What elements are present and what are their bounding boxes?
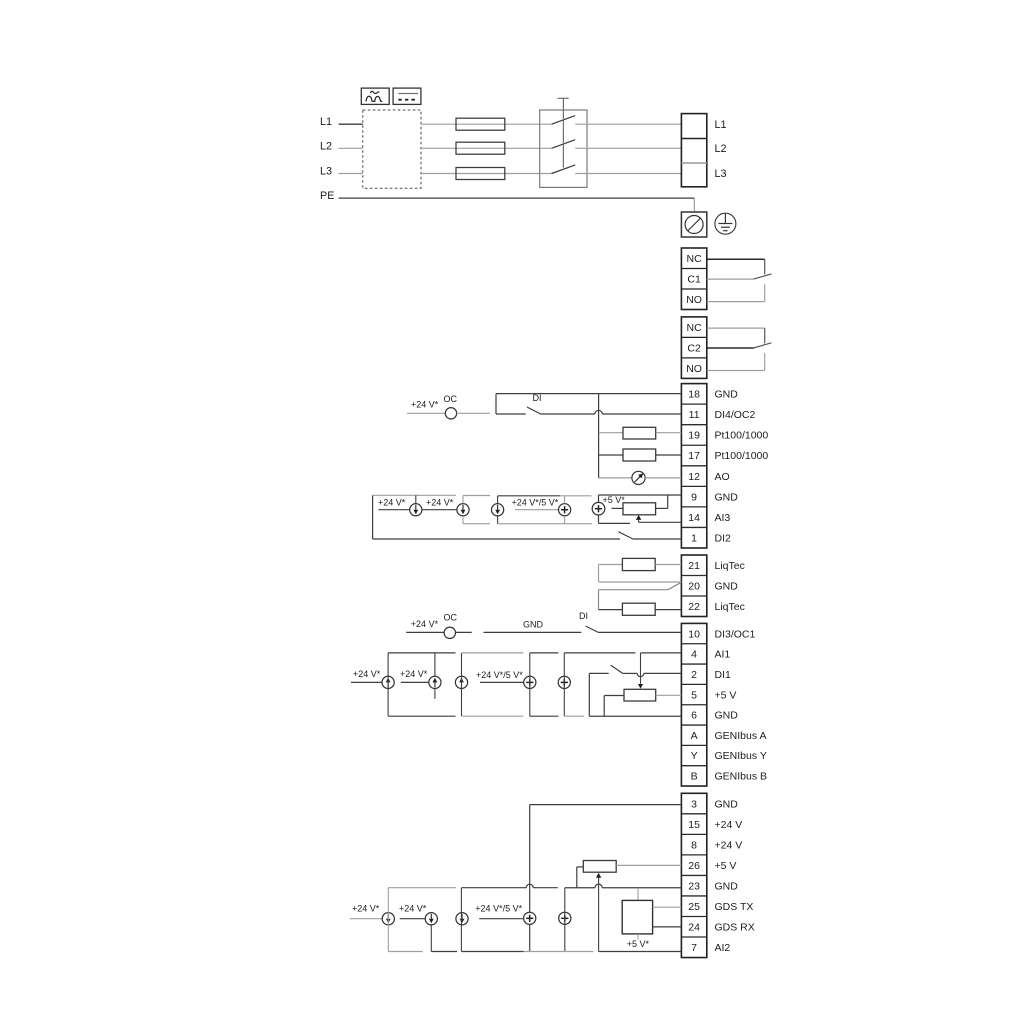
svg-text:+24 V*: +24 V* <box>378 498 406 508</box>
svg-text:20: 20 <box>688 580 700 592</box>
svg-text:14: 14 <box>688 512 700 524</box>
svg-text:A: A <box>691 730 698 742</box>
svg-text:L1: L1 <box>715 119 727 131</box>
svg-text:LiqTec: LiqTec <box>715 601 745 613</box>
svg-text:26: 26 <box>688 860 700 872</box>
svg-text:NO: NO <box>686 363 702 375</box>
svg-text:DI: DI <box>533 393 542 403</box>
svg-text:Pt100/1000: Pt100/1000 <box>715 430 769 442</box>
svg-text:23: 23 <box>688 880 700 892</box>
svg-text:AI1: AI1 <box>715 649 731 661</box>
svg-text:+24 V*: +24 V* <box>426 498 454 508</box>
svg-text:GND: GND <box>715 880 739 892</box>
svg-text:9: 9 <box>691 491 697 503</box>
svg-text:7: 7 <box>691 942 697 954</box>
svg-text:AO: AO <box>715 471 730 483</box>
svg-text:AI3: AI3 <box>715 512 731 524</box>
svg-text:GDS TX: GDS TX <box>715 901 754 913</box>
svg-text:NC: NC <box>687 253 703 265</box>
svg-text:DI3/OC1: DI3/OC1 <box>715 628 756 640</box>
svg-text:25: 25 <box>688 901 700 913</box>
svg-text:15: 15 <box>688 819 700 831</box>
svg-text:GND: GND <box>715 389 739 401</box>
svg-text:+5 V*: +5 V* <box>603 495 626 505</box>
svg-text:B: B <box>691 771 698 783</box>
svg-text:3: 3 <box>691 798 697 810</box>
svg-text:AI2: AI2 <box>715 942 731 954</box>
svg-text:NO: NO <box>686 294 702 306</box>
svg-text:GND: GND <box>523 620 544 630</box>
svg-text:2: 2 <box>691 669 697 681</box>
svg-text:L2: L2 <box>715 143 727 155</box>
svg-text:+24 V*: +24 V* <box>353 669 381 679</box>
svg-text:+24 V: +24 V <box>715 839 743 851</box>
svg-text:+24 V*: +24 V* <box>411 619 439 629</box>
svg-text:11: 11 <box>689 409 700 421</box>
svg-text:L1: L1 <box>320 116 332 128</box>
svg-text:DI1: DI1 <box>715 669 732 681</box>
svg-text:17: 17 <box>688 450 700 462</box>
svg-text:24: 24 <box>688 921 700 933</box>
svg-text:+24 V*: +24 V* <box>399 903 427 913</box>
svg-text:GENIbus Y: GENIbus Y <box>715 750 767 762</box>
svg-text:+24 V*/5 V*: +24 V*/5 V* <box>475 903 522 913</box>
svg-text:GND: GND <box>715 710 739 722</box>
svg-text:22: 22 <box>688 601 700 613</box>
svg-text:+24 V*: +24 V* <box>411 399 439 409</box>
svg-text:GENIbus B: GENIbus B <box>715 771 768 783</box>
svg-text:DI2: DI2 <box>715 532 732 544</box>
svg-text:GND: GND <box>715 491 739 503</box>
svg-text:OC: OC <box>444 394 458 404</box>
svg-text:12: 12 <box>688 471 700 483</box>
svg-text:+5 V: +5 V <box>715 860 737 872</box>
svg-text:1: 1 <box>691 532 697 544</box>
svg-text:Y: Y <box>691 750 698 762</box>
svg-text:+24 V*: +24 V* <box>400 669 428 679</box>
svg-text:L3: L3 <box>320 166 332 178</box>
svg-text:18: 18 <box>688 389 700 401</box>
svg-text:PE: PE <box>320 190 334 202</box>
svg-text:GND: GND <box>715 580 739 592</box>
svg-text:C2: C2 <box>687 342 701 354</box>
svg-text:5: 5 <box>691 689 697 701</box>
svg-text:NC: NC <box>687 322 703 334</box>
svg-text:+5 V*: +5 V* <box>627 939 650 949</box>
svg-text:GENIbus A: GENIbus A <box>715 730 767 742</box>
svg-text:GND: GND <box>715 798 739 810</box>
svg-text:DI4/OC2: DI4/OC2 <box>715 409 756 421</box>
svg-text:6: 6 <box>691 710 697 722</box>
svg-text:DI: DI <box>579 611 588 621</box>
svg-text:10: 10 <box>688 628 700 640</box>
svg-text:+5 V: +5 V <box>715 689 737 701</box>
svg-text:GDS RX: GDS RX <box>715 921 755 933</box>
svg-text:19: 19 <box>688 430 700 442</box>
svg-text:+24 V: +24 V <box>715 819 743 831</box>
svg-text:+24 V*/5 V*: +24 V*/5 V* <box>476 670 523 680</box>
svg-text:4: 4 <box>691 649 697 661</box>
svg-text:OC: OC <box>444 612 458 622</box>
svg-text:Pt100/1000: Pt100/1000 <box>715 450 769 462</box>
svg-text:21: 21 <box>688 560 700 572</box>
svg-text:L2: L2 <box>320 140 332 152</box>
svg-text:C1: C1 <box>687 273 701 285</box>
svg-text:L3: L3 <box>715 168 727 180</box>
svg-text:LiqTec: LiqTec <box>715 560 745 572</box>
svg-text:+24 V*/5 V*: +24 V*/5 V* <box>512 498 559 508</box>
svg-text:+24 V*: +24 V* <box>352 903 380 913</box>
svg-text:8: 8 <box>691 839 697 851</box>
